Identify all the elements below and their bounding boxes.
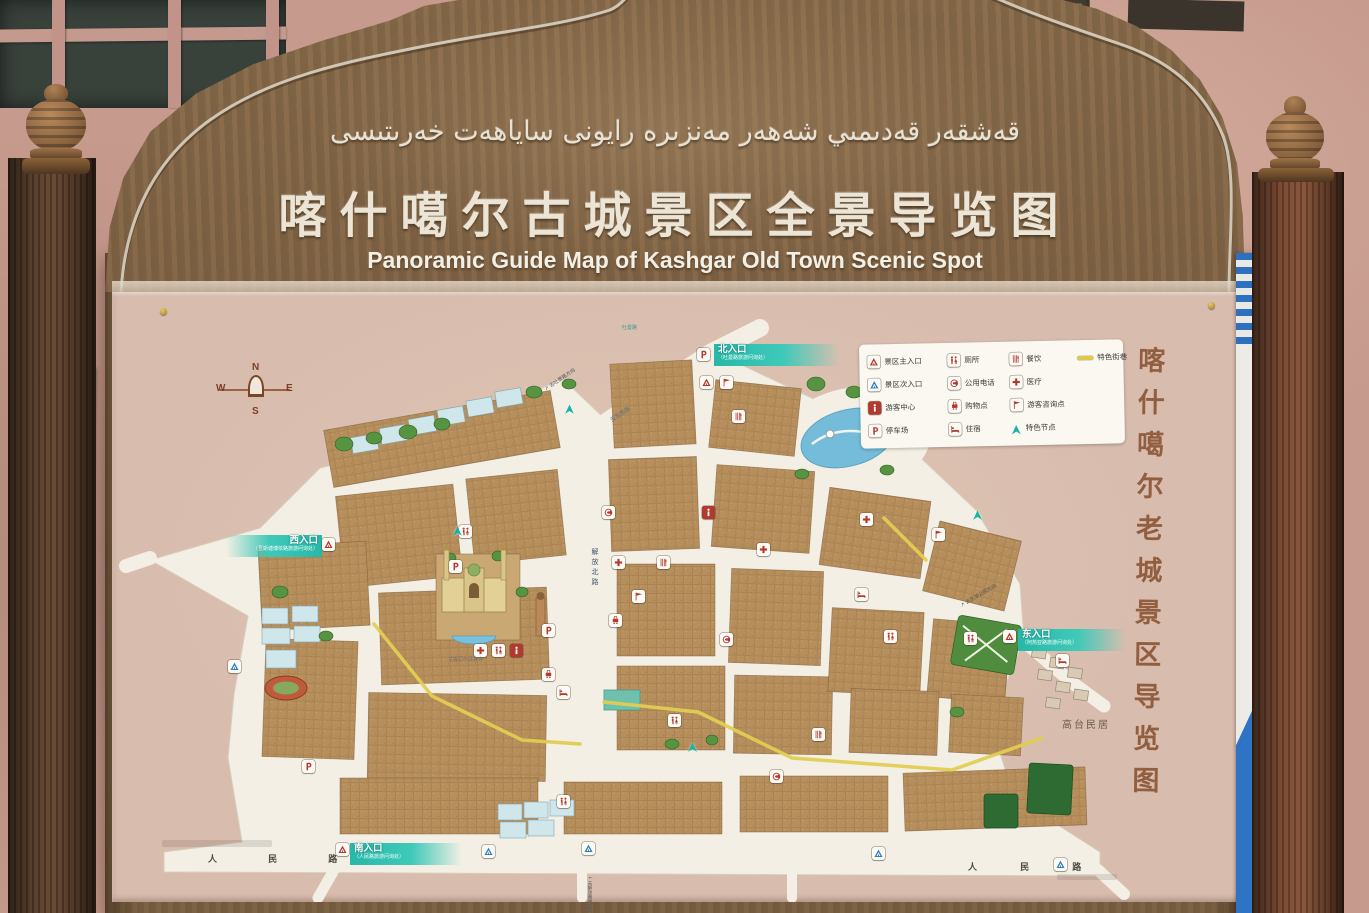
right-wooden-post: [1252, 172, 1344, 913]
featured-node-marker: [452, 524, 463, 535]
public-phone-icon: [720, 633, 733, 646]
legend-item-featured-node: 特色节点: [1011, 421, 1079, 433]
lodging-icon: [1056, 654, 1069, 667]
south-entrance-banner: 南入口 （人民路旅游问询处）: [350, 843, 462, 865]
south-entrance-label: 南入口: [354, 844, 458, 854]
north-entrance-label: 北入口: [718, 345, 836, 355]
renmin-road-label-east: 人 民 路: [968, 860, 1101, 873]
window-grille-bar: [168, 0, 181, 108]
legend-item-lodging: 住宿: [949, 422, 1011, 436]
east-entrance-note: （阿热亚路旅游问询处）: [1022, 640, 1122, 646]
featured-node-marker: [564, 402, 575, 413]
medical-icon: [860, 513, 873, 526]
featured-node-icon: [1011, 422, 1022, 433]
lodging-icon: [855, 588, 868, 601]
secondary-entrance-icon: [868, 378, 881, 391]
shopping-icon: [609, 614, 622, 627]
east-entrance-banner: 东入口 （阿热亚路旅游问询处）: [1018, 629, 1126, 651]
legend-item-shopping: 购物点: [948, 399, 1010, 413]
north-entrance-note: （吐曼路旅游问询处）: [718, 355, 836, 361]
legend-item-visitor-center: 游客中心: [868, 400, 948, 415]
toilet-icon: [964, 632, 977, 645]
jiefang-north-road-label: 解放北路: [590, 548, 600, 588]
tuman-road-label: 吐曼路: [622, 324, 637, 331]
medical-icon: [1010, 375, 1023, 388]
lodging-icon: [949, 423, 962, 436]
secondary-entrance-marker: [482, 845, 495, 858]
west-entrance-label: 西入口: [230, 536, 318, 546]
shopping-icon: [948, 400, 961, 413]
dining-icon: [812, 728, 825, 741]
compass-south: S: [252, 406, 259, 417]
secondary-entrance-marker: [228, 660, 241, 673]
medical-icon: [612, 556, 625, 569]
visitor-center-icon: [702, 506, 715, 519]
idkah-label: 艾提尕尔清真寺: [448, 656, 483, 663]
medical-icon: [757, 543, 770, 556]
legend-item-medical: 医疗: [1010, 374, 1078, 388]
compass-rose: N S W E: [216, 362, 294, 420]
legend-item-secondary-entrance: 景区次入口: [868, 377, 948, 392]
footnote-smudge: [162, 840, 272, 847]
info-point-icon: [632, 590, 645, 603]
toilet-icon: [884, 630, 897, 643]
direction-to-jiefang-south: ↓ 去解放南路方向: [586, 876, 592, 913]
map-legend: 景区主入口 厕所 餐饮 特色街巷 景区次入口 公用电话 医疗 游客中心 购物点 …: [859, 339, 1125, 449]
public-phone-icon: [770, 770, 783, 783]
window-grille-bar: [0, 27, 286, 43]
legend-item-featured-street: 特色街巷: [1077, 351, 1127, 363]
parking-icon: [302, 760, 315, 773]
shopping-icon: [542, 668, 555, 681]
secondary-entrance-marker: [872, 847, 885, 860]
window-far-right: [1128, 0, 1245, 32]
public-phone-icon: [602, 506, 615, 519]
photo-of-map-signboard: { "signboard": { "title_uyghur": "قەشقەر…: [0, 0, 1369, 913]
title-uyghur: قەشقەر قەدىمىي شەھەر مەنزىرە رايونى سايا…: [260, 116, 1090, 147]
info-point-marker: [720, 376, 733, 389]
east-entrance-marker: [1003, 630, 1016, 643]
legend-item-dining: 餐饮: [1009, 351, 1077, 365]
main-entrance-icon: [867, 355, 880, 368]
featured-node-marker: [687, 740, 698, 751]
parking-icon: [869, 424, 882, 437]
lodging-icon: [557, 686, 570, 699]
map-panel: N S W E 景区主入口 厕所 餐饮 特色街巷 景区次入口 公用电话 医疗 游…: [112, 292, 1240, 902]
toilet-icon: [668, 714, 681, 727]
stadium-oval: [265, 676, 307, 700]
footnote-smudge: [1057, 874, 1117, 880]
toilet-icon: [492, 644, 505, 657]
panel-top-edge: [112, 281, 1238, 292]
toilet-icon: [947, 354, 960, 367]
west-entrance-note: （吾斯塘博依路旅游问询处）: [230, 546, 318, 552]
west-entrance-marker: [322, 538, 335, 551]
south-entrance-note: （人民路旅游问询处）: [354, 854, 458, 860]
legend-item-toilet: 厕所: [947, 353, 1009, 367]
info-point-icon: [1010, 398, 1023, 411]
compass-east: E: [286, 383, 293, 394]
title-english: Panoramic Guide Map of Kashgar Old Town …: [235, 247, 1115, 274]
left-wooden-post: [8, 158, 96, 913]
compass-north: N: [252, 362, 259, 373]
featured-node-marker: [972, 508, 983, 519]
legend-item-info-point: 游客咨询点: [1010, 397, 1078, 411]
dining-icon: [732, 410, 745, 423]
east-entrance-label: 东入口: [1022, 630, 1122, 640]
public-phone-icon: [948, 377, 961, 390]
compass-arch-icon: [248, 375, 264, 397]
parking-icon: [697, 348, 710, 361]
legend-item-parking: 停车场: [869, 423, 949, 438]
secondary-entrance-marker: [582, 842, 595, 855]
compass-west: W: [216, 383, 225, 394]
screw: [1208, 302, 1215, 309]
north-entrance-marker: [700, 376, 713, 389]
legend-item-public-phone: 公用电话: [948, 376, 1010, 390]
visitor-center-icon: [510, 644, 523, 657]
legend-item-main-entrance: 景区主入口: [867, 354, 947, 369]
renmin-road-label-west: 人 民 路: [208, 852, 361, 865]
side-caption-calligraphy: 喀什噶尔老城景区导览图: [1123, 346, 1169, 846]
featured-street-icon: [1077, 355, 1093, 359]
parking-icon: [449, 560, 462, 573]
info-point-icon: [932, 528, 945, 541]
gaotai-label: 高台民居: [1062, 716, 1110, 731]
parking-icon: [542, 624, 555, 637]
toilet-icon: [557, 795, 570, 808]
dining-icon: [1009, 352, 1022, 365]
west-entrance-banner: 西入口 （吾斯塘博依路旅游问询处）: [226, 535, 322, 557]
title-chinese: 喀什噶尔古城景区全景导览图: [235, 176, 1115, 246]
dining-icon: [657, 556, 670, 569]
visitor-center-icon: [868, 401, 881, 414]
north-entrance-banner: 北入口 （吐曼路旅游问询处）: [714, 344, 840, 366]
screw: [160, 308, 167, 315]
